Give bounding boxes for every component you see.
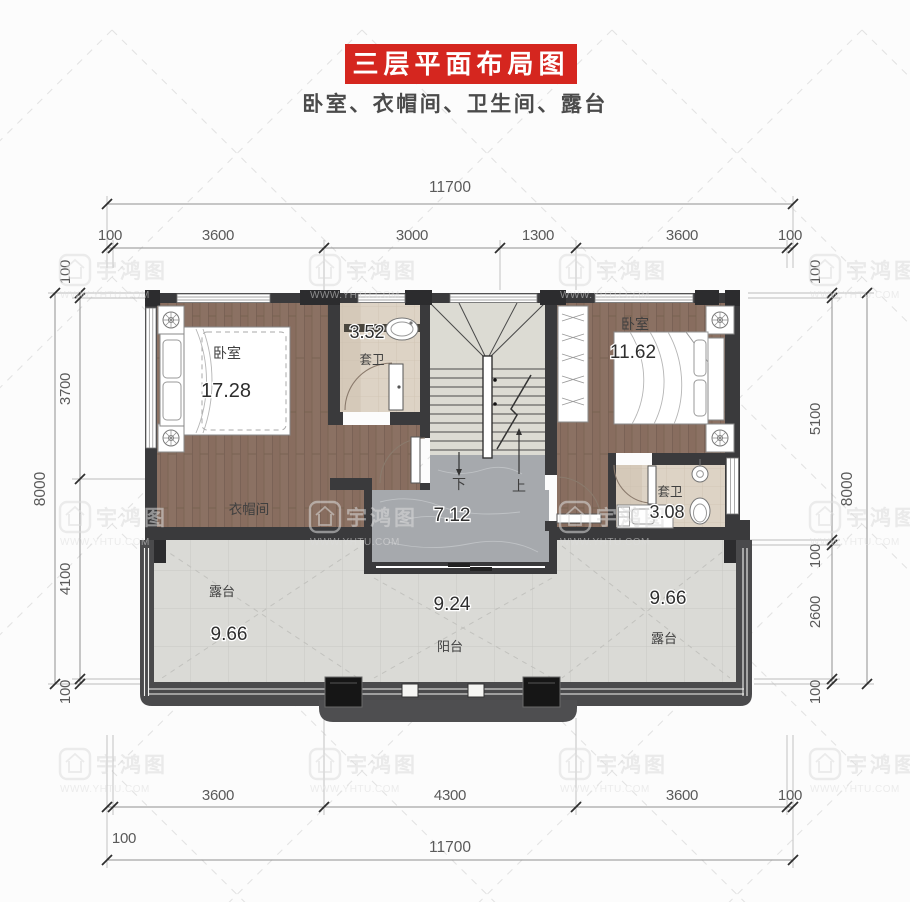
bay-slider-2	[470, 567, 492, 571]
bedroom1-area: 17.28	[201, 380, 251, 402]
window-bath2-right	[727, 458, 739, 514]
shower-head-icon	[692, 466, 708, 482]
stairs-up-label: 上	[512, 478, 526, 494]
bath1-shower-zone	[340, 303, 360, 412]
dim-right-total: 8000	[839, 471, 856, 506]
railing-post	[402, 684, 418, 697]
pillow	[694, 380, 706, 416]
dim-bottom-left: 100	[112, 830, 136, 847]
dim-top-seg3: 1300	[522, 227, 554, 244]
bath2-label: 套卫	[657, 484, 682, 499]
toilet-icon	[690, 498, 710, 524]
page-title: 三层平面布局图	[352, 49, 569, 79]
terrace-left-label: 露台	[209, 584, 235, 599]
dim-left-seg1: 3700	[57, 373, 74, 405]
hall-area: 7.12	[434, 505, 471, 526]
bay-slider-1	[448, 563, 470, 567]
bed-headboard	[708, 338, 724, 420]
bedroom2-area: 11.62	[610, 342, 656, 363]
balcony-area: 9.24	[434, 594, 471, 615]
dim-top-seg2: 3000	[396, 227, 428, 244]
terrace-right-label: 露台	[651, 631, 677, 646]
closet-label: 衣帽间	[229, 502, 270, 517]
dim-bottom-seg3: 100	[778, 787, 802, 804]
dim-right-seg4: 100	[807, 680, 824, 704]
terrace-left-area: 9.66	[211, 624, 248, 645]
pillow	[694, 340, 706, 376]
dim-top-seg4: 3600	[666, 227, 698, 244]
dim-top-total: 11700	[429, 179, 471, 196]
dim-left-seg3: 100	[57, 680, 74, 704]
terrace-column	[325, 677, 362, 707]
pillow	[163, 382, 181, 420]
dim-top-seg5: 100	[778, 227, 802, 244]
dim-left-total: 8000	[32, 471, 49, 506]
bath1-label: 套卫	[359, 352, 384, 367]
stairs-down-label: 下	[452, 476, 466, 492]
dim-bottom-total: 11700	[429, 839, 471, 856]
window-left	[146, 308, 156, 448]
dim-bottom-seg2: 3600	[666, 787, 698, 804]
dim-top-seg0: 100	[98, 227, 122, 244]
floor-plan-svg: 宇鸿图 WWW.YHTU.COM 三层平面布局图 卧室、衣帽间、卫生间、露台	[0, 0, 910, 902]
stair-handrail	[483, 356, 492, 458]
header: 三层平面布局图 卧室、衣帽间、卫生间、露台	[302, 44, 608, 116]
balcony-label: 阳台	[437, 639, 463, 654]
bath2-area: 3.08	[649, 502, 684, 522]
bedroom1-label: 卧室	[213, 345, 241, 361]
dim-top-seg1: 3600	[202, 227, 234, 244]
terrace-right-area: 9.66	[650, 588, 687, 609]
dim-right-seg3: 2600	[807, 596, 824, 628]
window-top-3	[450, 294, 537, 303]
dim-left-seg2: 4100	[57, 563, 74, 595]
bath1-area: 3.52	[349, 322, 384, 342]
pillow	[163, 340, 181, 378]
terrace-column	[523, 677, 560, 707]
bedroom2-label: 卧室	[621, 316, 649, 332]
page-subtitle: 卧室、衣帽间、卫生间、露台	[302, 92, 608, 116]
dim-bottom-seg0: 3600	[202, 787, 234, 804]
dim-right-seg1: 5100	[807, 403, 824, 435]
dim-bottom-seg1: 4300	[434, 787, 466, 804]
bedroom1-furniture	[158, 306, 290, 452]
floor-plan-page: 宇鸿图 WWW.YHTU.COM 三层平面布局图 卧室、衣帽间、卫生间、露台	[0, 0, 910, 902]
railing-post	[468, 684, 484, 697]
window-top-1	[177, 294, 270, 303]
